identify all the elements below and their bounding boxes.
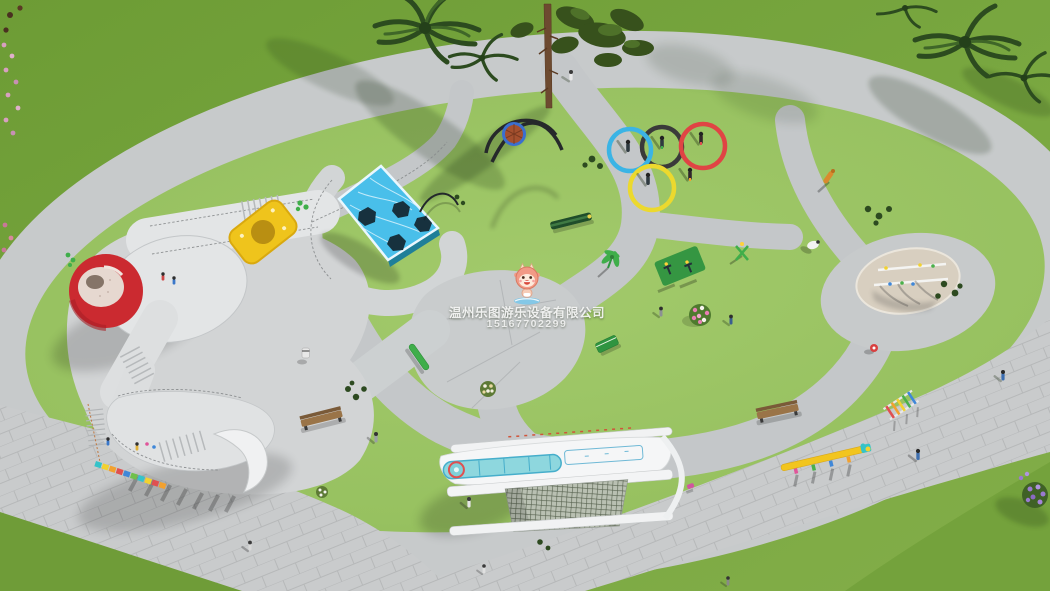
volcano-tube-slide bbox=[69, 254, 143, 328]
child-on-deck bbox=[161, 272, 164, 280]
playground-aerial-view: 温州乐图游乐设备有限公司 15167702299 bbox=[0, 0, 1050, 591]
child-on-deck bbox=[135, 442, 138, 450]
white-flower-bush bbox=[480, 381, 496, 397]
child-on-deck bbox=[172, 276, 175, 284]
white-flower-small bbox=[316, 486, 328, 498]
child-on-deck bbox=[106, 437, 109, 445]
scene-render bbox=[0, 0, 1050, 591]
